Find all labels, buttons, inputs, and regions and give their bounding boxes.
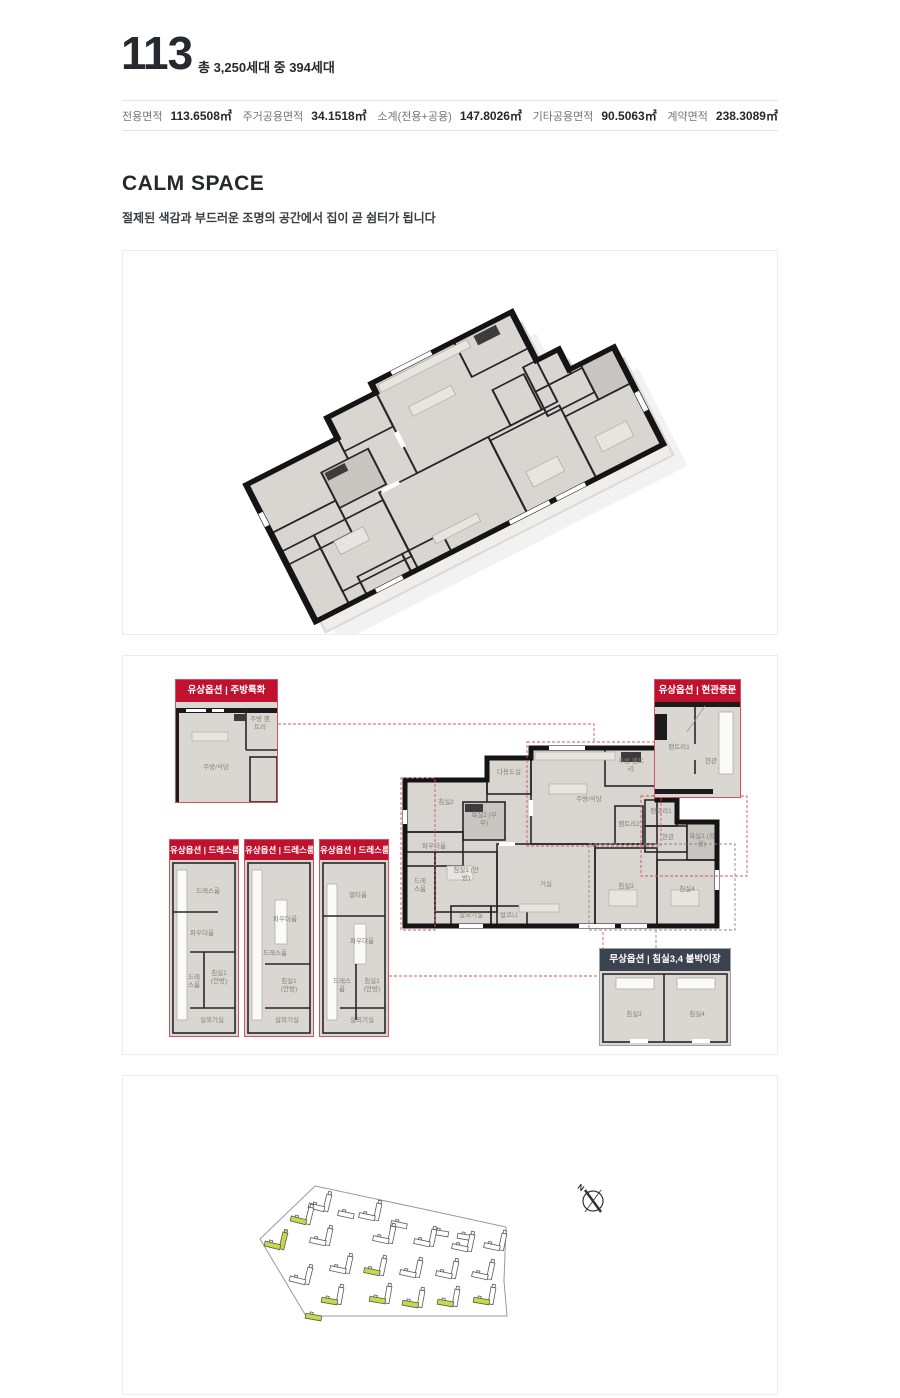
room-label-powder: 파우더룸 [190,930,214,938]
spec-residential-common-area: 주거공용면적 34.1518㎡ [243,107,367,124]
site-building [437,1283,460,1307]
spec-label: 계약면적 [667,108,707,124]
callout-dress3-header: 유상옵션 | 드레스룸특화3 [170,840,238,860]
section-title: CALM SPACE [122,172,264,196]
site-building [436,1255,460,1280]
callout-dress1-header: 유상옵션 | 드레스룸특화1 [320,840,388,860]
site-plan-panel: N [122,1075,778,1395]
callout-entrance-option: 유상옵션 | 현관중문 팬트리1 현관 [654,679,741,798]
room-label-outdoor-unit: 실외기실 [350,1017,374,1025]
callout-dress2-plan: 파우더룸 드레스룸 침실1 (안방) 실외기실 [245,860,313,1036]
callout-entrance-header: 유상옵션 | 현관중문 [655,680,740,702]
site-building [359,1197,383,1222]
spec-label: 소계(전용+공용) [377,108,451,124]
spec-label: 주거공용면적 [243,108,304,124]
room-label-kitchen-pantry: 주방 팬트리 [618,758,644,774]
room-label-bedroom1: 침실1 (안방) [207,970,231,986]
compass-icon: N [576,1182,603,1212]
room-label-kitchen: 주방/식당 [576,796,602,804]
site-building [290,1200,314,1225]
site-building [400,1254,424,1279]
unit-type-number: 113 [121,26,192,80]
callout-closet-plan: 침실3 침실4 [600,971,730,1045]
spec-other-common-area: 기타공용면적 90.5063㎡ [533,107,657,124]
room-label-bedroom2: 침실2 [438,799,454,807]
room-label-multiroom: 멀티룸 [349,892,367,900]
site-building [321,1281,344,1305]
section-description: 절제된 색감과 부드러운 조명의 공간에서 집이 곧 쉼터가 됩니다 [122,209,436,226]
room-label-powder: 파우더룸 [350,938,374,946]
callout-dressroom-option-3: 유상옵션 | 드레스룸특화3 드레스룸 파우더룸 드레스룸 침실1 (안방) 실… [169,839,239,1037]
spec-exclusive-area: 전용면적 113.6508㎡ [122,107,232,124]
spec-value: 34.1518㎡ [311,107,366,124]
spec-value: 147.8026㎡ [460,107,522,124]
site-building [369,1280,392,1304]
room-label-entrance: 현관 [662,834,674,842]
site-buildings [264,1187,507,1320]
site-building [402,1284,425,1308]
room-label-dress: 드레스룸 [186,974,202,990]
room-label-outdoor-unit: 실외기실 [275,1017,299,1025]
room-label-bedroom1: 침실1 (안방) [360,978,384,994]
room-label-dress: 드레스룸 [412,878,428,894]
site-building [373,1220,397,1245]
site-building [472,1256,496,1281]
room-label-dress: 드레스룸 [333,978,351,994]
spec-value: 113.6508㎡ [170,107,231,124]
callout-kitchen-plan: 주방/식당 주방 팬트리 [176,702,277,802]
spec-subtotal-area: 소계(전용+공용) 147.8026㎡ [377,107,522,124]
floor-plan-options-panel: 침실2 다용도실 욕실2 (부부) 파우더룸 드레스룸 침실1 (안방) 실외기… [122,655,778,1055]
site-building [338,1209,355,1219]
room-label-bath1: 욕실1 (공용) [689,833,715,849]
room-label-balcony: 발코니 [500,912,518,920]
site-building [452,1228,476,1253]
spec-value: 90.5063㎡ [601,107,656,124]
site-building [364,1252,388,1277]
callout-dressroom-option-2: 유상옵션 | 드레스룸특화2 파우더룸 드레스룸 침실1 (안방) 실외기실 [244,839,314,1037]
callout-dress2-header: 유상옵션 | 드레스룸특화2 [245,840,313,860]
room-label-outdoor-unit: 실외기실 [459,912,483,920]
room-label-pantry1: 팬트리1 [668,744,690,752]
site-building [264,1225,288,1250]
site-building [330,1250,354,1275]
callout-kitchen-option: 유상옵션 | 주방특화 주방/식당 주방 팬트리 [175,679,278,803]
callout-closet-header: 무상옵션 | 침실3,4 붙박이장 [600,949,730,971]
callout-dress2-drawing [245,860,313,1036]
room-label-dress: 드레스룸 [196,888,220,896]
room-label-bedroom3: 침실3 [618,883,634,891]
spec-label: 전용면적 [122,108,162,124]
callout-dress1-plan: 멀티룸 파우더룸 드레스룸 침실1 (안방) 실외기실 [320,860,388,1036]
callout-dressroom-option-1: 유상옵션 | 드레스룸특화1 멀티룸 파우더룸 드레스룸 침실1 (안방) 실외… [319,839,389,1037]
room-label-kitchen-pantry: 주방 팬트리 [248,716,272,732]
room-label-entrance: 현관 [705,758,717,766]
area-spec-bar: 전용면적 113.6508㎡ 주거공용면적 34.1518㎡ 소계(전용+공용)… [122,100,778,131]
spec-value: 238.3089㎡ [716,107,778,124]
callout-dress3-plan: 드레스룸 파우더룸 드레스룸 침실1 (안방) 실외기실 [170,860,238,1036]
compass-north-label: N [576,1182,586,1193]
unit-type-page: 113 총 3,250세대 중 394세대 전용면적 113.6508㎡ 주거공… [0,0,900,1398]
room-label-bath2: 욕실2 (부부) [471,812,497,828]
household-count: 총 3,250세대 중 394세대 [198,57,335,76]
site-building [414,1223,438,1248]
room-label-powder: 파우더룸 [273,916,297,924]
callout-dress1-drawing [320,860,388,1036]
room-label-powder: 파우더룸 [422,843,446,851]
room-label-pantry1: 팬트리1 [650,808,672,816]
floor-plan-3d-panel [122,250,778,635]
room-label-bedroom3: 침실3 [626,1011,642,1019]
site-building [484,1227,508,1252]
room-label-bedroom4: 침실4 [679,886,695,894]
room-label-living: 거실 [540,881,552,889]
room-label-bedroom4: 침실4 [689,1011,705,1019]
room-label-dress: 드레스룸 [263,950,287,958]
room-label-bedroom1: 침실1 (안방) [277,978,301,994]
site-building [473,1281,496,1305]
site-building [305,1311,322,1321]
site-building [310,1222,334,1247]
callout-entrance-plan: 팬트리1 현관 [655,702,740,797]
callout-dress3-drawing [170,860,238,1036]
callout-closet-drawing [600,971,730,1045]
room-label-outdoor-unit: 실외기실 [200,1017,224,1025]
floor-plan-3d-illustration [123,251,777,634]
spec-contract-area: 계약면적 238.3089㎡ [667,107,778,124]
site-plan-drawing: N [123,1076,777,1394]
room-label-pantry2: 팬트리2 [618,821,640,829]
room-label-bedroom1: 침실1 (안방) [453,867,479,883]
room-label-utility: 다용도실 [497,769,521,777]
spec-label: 기타공용면적 [533,108,594,124]
callout-kitchen-header: 유상옵션 | 주방특화 [176,680,277,702]
callout-builtin-closet-option: 무상옵션 | 침실3,4 붙박이장 침실3 침실4 [599,948,731,1046]
site-building [289,1260,313,1285]
room-label-kitchen-dining: 주방/식당 [203,764,229,772]
